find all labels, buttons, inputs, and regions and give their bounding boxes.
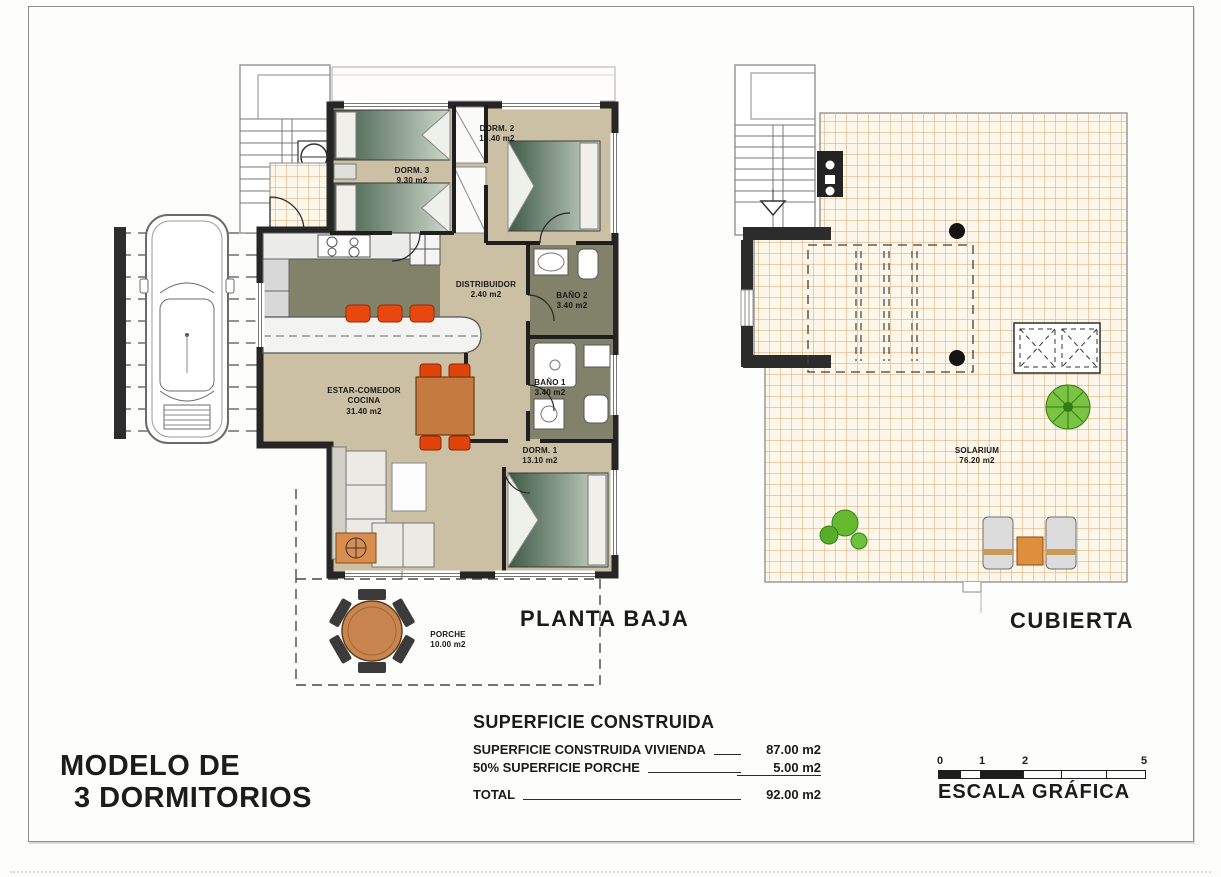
surface-table-title: SUPERFICIE CONSTRUIDA (473, 712, 821, 733)
scan-artifact (10, 871, 1211, 873)
roof-drain (949, 350, 965, 366)
leader-line (648, 772, 741, 773)
scale-tick-2: 2 (1022, 755, 1028, 767)
cubierta-drawing (725, 55, 1145, 615)
leader-line (714, 754, 741, 755)
scale-caption: ESCALA GRÁFICA (938, 781, 1130, 804)
cubierta-title: CUBIERTA (1010, 608, 1134, 634)
carport-wall (114, 227, 126, 439)
surface-row-total: TOTAL 92.00 m2 (473, 787, 821, 802)
room-label-dorm1: DORM. 113.10 m2 (522, 446, 557, 467)
car-icon (140, 215, 234, 443)
cooktop-icon (318, 235, 370, 257)
sofa-icon (332, 447, 434, 567)
surface-row-vivienda: SUPERFICIE CONSTRUIDA VIVIENDA 87.00 m2 (473, 742, 821, 757)
subtotal-rule (473, 775, 821, 783)
planta-baja-title: PLANTA BAJA (520, 606, 689, 632)
skylight-icon (1014, 323, 1100, 373)
room-label-dorm3: DORM. 39.30 m2 (395, 166, 430, 187)
model-title-line2: 3 DORMITORIOS (60, 782, 312, 814)
bed-icon-dorm1 (508, 473, 608, 567)
graphic-scale: 0 1 2 5 ESCALA GRÁFICA (936, 755, 1148, 805)
scale-tick-0: 0 (937, 755, 943, 767)
roof-notch (963, 582, 981, 592)
model-title: MODELO DE 3 DORMITORIOS (60, 750, 312, 815)
chimney-icon (817, 151, 843, 197)
room-label-distribuidor: DISTRIBUIDOR2.40 m2 (456, 280, 516, 301)
bano2-fixtures (534, 249, 598, 279)
porch-table-icon (329, 589, 416, 673)
room-label-porche: PORCHE10.00 m2 (430, 630, 465, 651)
scale-bar (938, 770, 1146, 779)
side-table-icon (1017, 537, 1043, 565)
stairs-icon-roof (735, 65, 815, 235)
room-label-solarium: SOLARIUM76.20 m2 (955, 446, 999, 467)
eave-strip (332, 67, 615, 101)
surface-row-porche: 50% SUPERFICIE PORCHE 5.00 m2 (473, 760, 821, 775)
room-label-bano2: BAÑO 23.40 m2 (556, 291, 587, 312)
scale-tick-1: 1 (979, 755, 985, 767)
bar-stools-icon (346, 305, 434, 322)
kitchen-cabinet-icon (263, 259, 289, 323)
room-label-dorm2: DORM. 210.40 m2 (479, 124, 514, 145)
plant-icon (1046, 385, 1090, 429)
leader-line (523, 799, 741, 800)
surface-table: SUPERFICIE CONSTRUIDA SUPERFICIE CONSTRU… (473, 712, 821, 802)
planta-baja-drawing (110, 55, 630, 695)
model-title-line1: MODELO DE (60, 750, 312, 782)
breakfast-bar (263, 317, 481, 353)
room-label-estar: ESTAR-COMEDORCOCINA31.40 m2 (327, 386, 401, 417)
scale-tick-5: 5 (1141, 755, 1147, 767)
plan-sheet: DORM. 39.30 m2 DORM. 210.40 m2 DISTRIBUI… (0, 0, 1221, 877)
room-label-bano1: BAÑO 13.40 m2 (534, 378, 565, 399)
roof-drain (949, 223, 965, 239)
